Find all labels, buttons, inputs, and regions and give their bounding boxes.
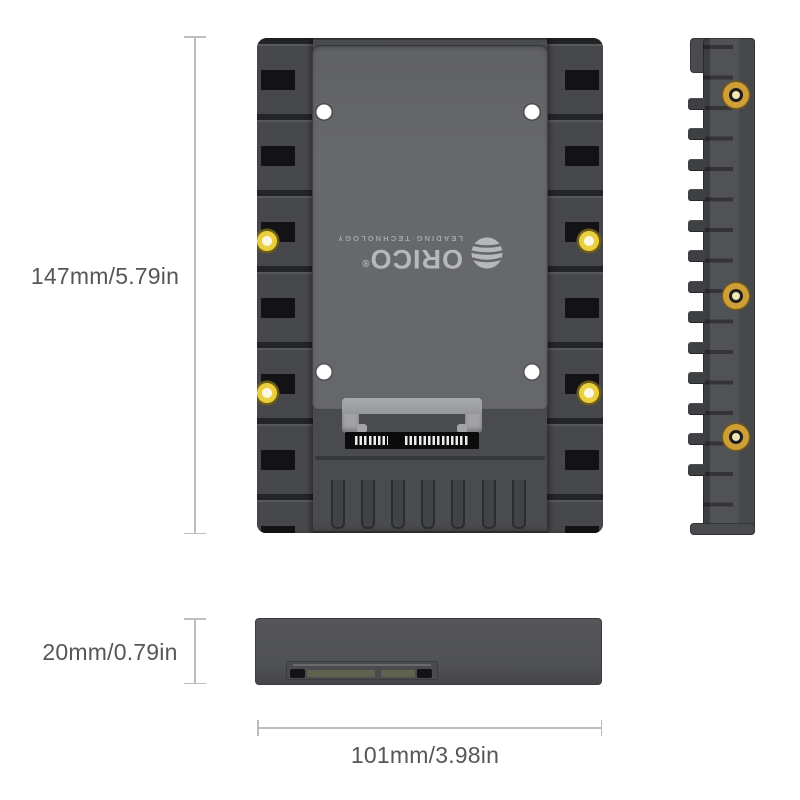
brand-tagline: LEADING·TECHNOLOGY: [336, 234, 463, 243]
registered-trademark-icon: ®: [362, 257, 369, 268]
connector-end-tab: [290, 669, 305, 678]
side-tab: [688, 250, 705, 262]
side-rail-bar: [703, 38, 755, 535]
mounting-hole-white: [525, 105, 540, 120]
side-tab: [688, 372, 705, 384]
connector-end-tab: [417, 669, 432, 678]
bottom-view: [255, 618, 602, 685]
vent-slot: [391, 480, 405, 529]
side-view: [688, 38, 757, 535]
screw-hole-gold: [257, 383, 277, 403]
side-tab: [688, 159, 705, 171]
side-tab: [688, 98, 705, 110]
width-dimension-line: [257, 720, 602, 736]
vent-slot: [361, 480, 375, 529]
right-rail: [547, 38, 603, 533]
screw-hole-gold: [729, 289, 743, 303]
side-tab: [688, 281, 705, 293]
screw-hole-gold: [729, 88, 743, 102]
vent-slot: [421, 480, 435, 529]
drive-bay-panel: [312, 45, 548, 410]
side-tab: [688, 128, 705, 140]
sata-power-pins: [405, 436, 469, 445]
brand-name-text: ORICO: [369, 244, 463, 274]
width-dimension-label: 101mm/3.98in: [325, 742, 525, 769]
screw-hole-gold: [579, 383, 599, 403]
globe-icon: [470, 236, 504, 270]
vent-slot: [331, 480, 345, 529]
side-grooves: [703, 38, 733, 535]
dimension-cap: [184, 683, 206, 685]
vent-slot: [512, 480, 526, 529]
height-dimension-label: 147mm/5.79in: [25, 263, 185, 290]
sata-data-pins: [355, 436, 388, 445]
dimension-cap: [184, 533, 206, 535]
sata-pin-strip: [345, 432, 479, 449]
mounting-hole-white: [317, 105, 332, 120]
front-view: ORICO® LEADING·TECHNOLOGY: [257, 38, 603, 533]
product-dimension-diagram: 147mm/5.79in 20mm/0.79in 101mm/3.98in: [0, 0, 800, 800]
sata-connector-recess: [286, 661, 438, 680]
side-tab: [688, 403, 705, 415]
mounting-hole-white: [525, 365, 540, 380]
left-rail: [257, 38, 313, 533]
screw-hole-gold: [579, 231, 599, 251]
mounting-hole-white: [317, 365, 332, 380]
height-dimension-line: [184, 36, 206, 534]
dimension-line: [194, 36, 196, 534]
thickness-dimension-label: 20mm/0.79in: [30, 639, 190, 666]
side-tab: [688, 220, 705, 232]
orico-logo: ORICO® LEADING·TECHNOLOGY: [336, 234, 504, 272]
brand-name: ORICO®: [336, 245, 463, 272]
side-tab: [688, 189, 705, 201]
dimension-cap: [601, 720, 603, 736]
sata-connector-body: [342, 398, 482, 414]
side-tab: [688, 464, 705, 476]
vent-slot: [451, 480, 465, 529]
dimension-line: [257, 727, 602, 729]
connector-contact-strip: [307, 670, 375, 677]
brand-text-block: ORICO® LEADING·TECHNOLOGY: [336, 234, 463, 272]
screw-hole-gold: [729, 430, 743, 444]
recess-highlight: [293, 664, 431, 666]
frame-groove: [315, 456, 545, 460]
side-tab: [688, 433, 705, 445]
side-tab: [688, 342, 705, 354]
side-tab: [688, 311, 705, 323]
dimension-line: [194, 618, 196, 684]
vent-slot: [482, 480, 496, 529]
connector-contact-strip: [381, 670, 415, 677]
side-bottom-block: [690, 523, 755, 535]
screw-hole-gold: [257, 231, 277, 251]
